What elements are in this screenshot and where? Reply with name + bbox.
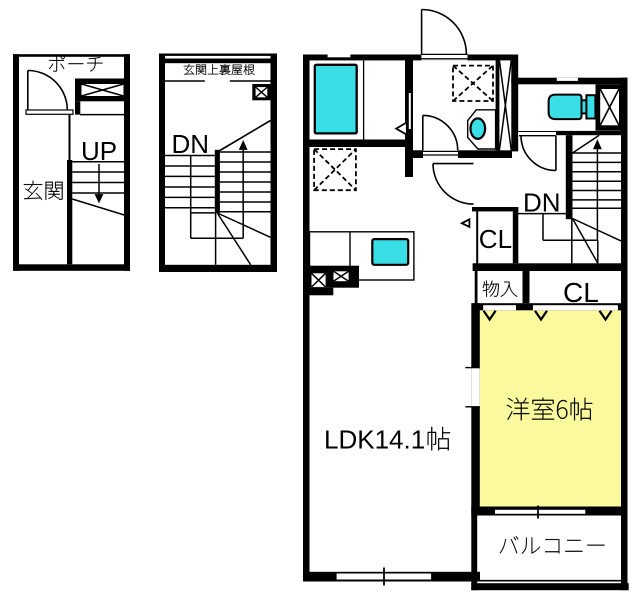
svg-text:CL: CL [563, 277, 599, 308]
svg-text:DN: DN [523, 188, 561, 218]
svg-text:LDK14.1: LDK14.1 [324, 425, 425, 455]
svg-text:UP: UP [81, 136, 117, 166]
svg-text:DN: DN [172, 129, 210, 159]
svg-text:CL: CL [479, 224, 512, 254]
